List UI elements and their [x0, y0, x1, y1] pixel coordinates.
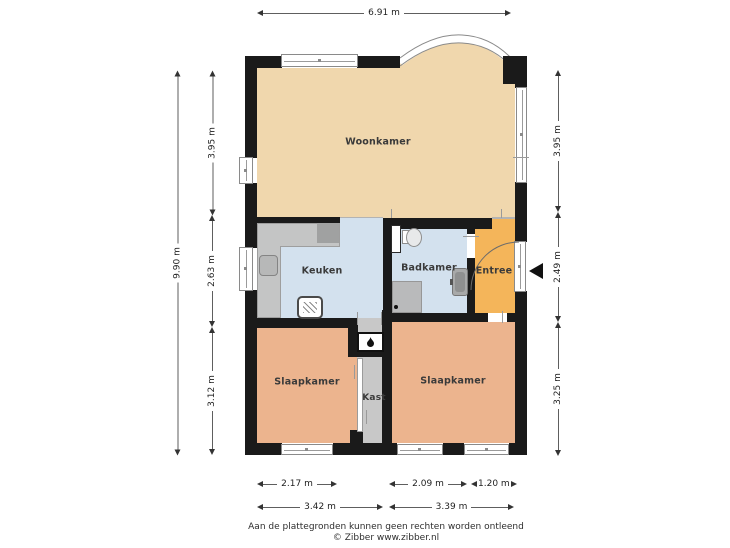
kitchen-sink [259, 255, 278, 276]
room-label-kitchen: Keuken [302, 266, 343, 277]
threshold [340, 217, 383, 218]
opening-tick [502, 311, 503, 323]
window [239, 157, 253, 184]
zibber-credit: © Zibber www.zibber.nl [248, 533, 524, 544]
window [397, 444, 443, 455]
room-label-bathroom: Badkamer [401, 263, 457, 274]
threshold [492, 217, 515, 219]
dim-left-top: 3.95 m [206, 70, 218, 215]
dim-right-top: 3.95 m [552, 70, 564, 212]
wall [245, 290, 257, 455]
opening-tick [357, 312, 358, 325]
dim-left-bottom: 3.12 m [206, 327, 218, 455]
entrance-marker-icon [529, 263, 543, 279]
dim-bottom-row2-left: 3.42 m [257, 501, 383, 513]
dim-bottom-row1-mid: 2.09 m [389, 478, 467, 490]
dim-bottom-row1-left: 2.17 m [257, 478, 337, 490]
opening-tick [381, 312, 382, 325]
window [239, 247, 253, 291]
wall [357, 56, 400, 68]
opening-tick [463, 236, 479, 237]
wall [245, 183, 257, 248]
room-label-bedroom-left: Slaapkamer [274, 377, 339, 388]
wall-bedroom-right-top [507, 313, 519, 322]
wall [245, 443, 282, 455]
wall [503, 56, 527, 84]
wall [333, 443, 397, 455]
flame-icon [366, 337, 375, 348]
room-label-entry: Entree [476, 266, 513, 277]
opening-tick [391, 209, 392, 218]
oven-icon [297, 296, 323, 319]
window [281, 444, 333, 455]
wall [245, 56, 257, 158]
wall-bathroom-entry [467, 218, 475, 234]
washbasin-inner [455, 272, 465, 292]
shower-drain [394, 305, 398, 309]
disclaimer-text: Aan de plattegronden kunnen geen rechten… [248, 522, 524, 533]
room-label-bedroom-right: Slaapkamer [420, 376, 485, 387]
bay-window [395, 34, 520, 74]
window [516, 87, 527, 183]
wall-closet-right [382, 310, 392, 443]
dim-left-mid: 2.63 m [206, 215, 218, 327]
floorplan-canvas: Woonkamer Keuken Badkamer Entree Slaapka… [0, 0, 730, 548]
closet-door-tick [354, 365, 355, 379]
window-tick [513, 157, 529, 158]
wall [443, 443, 464, 455]
dim-bottom-row1-right: 1.20 m [471, 478, 515, 490]
cooktop [317, 223, 339, 243]
wall [509, 443, 527, 455]
window [281, 54, 358, 67]
dim-top-width: 6.91 m [257, 7, 511, 19]
toilet-bowl [406, 228, 422, 247]
wall [515, 182, 527, 242]
footer: Aan de plattegronden kunnen geen rechten… [248, 522, 524, 544]
boiler [357, 332, 384, 352]
opening-tick [501, 209, 502, 218]
wall-kitchen-bottom [245, 318, 348, 328]
room-label-living: Woonkamer [345, 137, 411, 148]
dim-left-total: 9.90 m [171, 70, 183, 455]
closet-door-tick [366, 410, 367, 424]
wall-bedroom-right-top [383, 313, 488, 322]
window [464, 444, 509, 455]
bathroom-door-leaf [391, 225, 401, 253]
dim-bottom-row2-right: 3.39 m [389, 501, 514, 513]
dim-right-mid: 2.49 m [552, 212, 564, 322]
room-label-closet: Kast [362, 393, 386, 403]
washbasin-tap [450, 279, 453, 285]
dim-right-bottom: 3.25 m [552, 322, 564, 456]
